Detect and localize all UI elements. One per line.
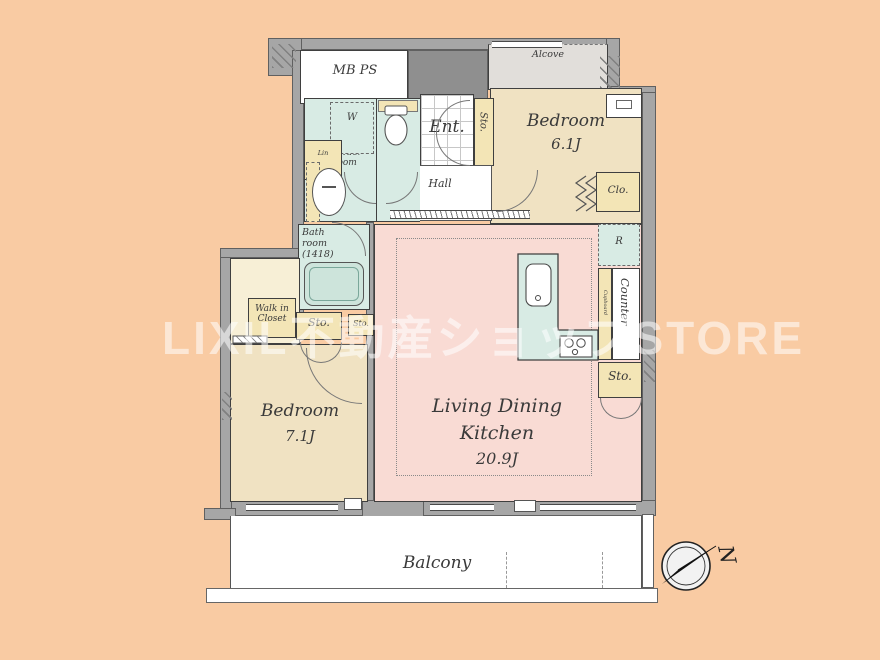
bathtub-inner [309, 267, 359, 301]
alcove-label: Alcove [498, 50, 598, 61]
shelf-label: Shelf [527, 346, 553, 353]
compass-needle [662, 546, 716, 584]
window-bedroom1 [492, 41, 562, 48]
cupboard-label: Cupboard [601, 290, 607, 315]
sink-faucet [322, 186, 336, 188]
compass: N [662, 542, 741, 590]
balcony-partition-2 [602, 552, 603, 588]
shoe-storage-label: Sto. [477, 112, 489, 132]
storage-2-label: Sto. [348, 319, 374, 328]
ldk-label-line2: Kitchen [397, 423, 597, 445]
floor-plan: MB PS Alcove Bedroom 6.1J Clo. Ent. Sto.… [0, 0, 880, 660]
storage-kitchen-label: Sto. [599, 370, 641, 384]
ldk-label-line1: Living Dining [397, 396, 597, 418]
balcony-label: Balcony [337, 554, 537, 574]
room-balcony [230, 516, 642, 588]
ldk-size: 20.9J [397, 450, 597, 468]
window-bedroom2 [246, 504, 338, 511]
shoe-storage [474, 98, 494, 166]
wall-right [642, 92, 656, 514]
refrigerator-label: R [599, 236, 639, 248]
bedroom1-size: 6.1J [500, 136, 632, 153]
compass-north-label: N [713, 542, 741, 567]
closet-bedroom1-label: Clo. [598, 184, 638, 196]
hatch-top-right [600, 56, 620, 88]
compass-outer-circle [662, 542, 710, 590]
room-toilet [376, 99, 420, 221]
wall-balcony-right-end [642, 514, 654, 588]
compass-inner-circle [667, 547, 705, 585]
sliding-door [390, 210, 530, 219]
compass-needle-line [678, 546, 716, 570]
bedroom1-niche-box [616, 100, 632, 109]
window-ldk-2 [540, 504, 636, 511]
wall-vent-1 [344, 498, 362, 510]
wall-wic-top [220, 248, 304, 258]
storage-1-label: Sto. [297, 317, 341, 330]
hatch-top-left [272, 44, 296, 68]
balcony-edge [206, 588, 658, 603]
kitchen-counter-label: Counter [618, 278, 631, 325]
washer-label: W [340, 112, 364, 124]
mb-ps-label: MB PS [305, 64, 405, 79]
hatch-left [222, 392, 232, 420]
wall-vent-2 [514, 500, 536, 512]
bedroom2-name: Bedroom [234, 402, 366, 422]
bedroom2-size: 7.1J [234, 428, 366, 445]
window-ldk-1 [430, 504, 494, 511]
wic-label: Walk in Closet [249, 304, 295, 325]
hall-label: Hall [415, 178, 465, 191]
toilet-shelf [378, 100, 418, 112]
sink-basin [312, 168, 346, 216]
hatch-right [644, 350, 655, 382]
linen-label: Lin [308, 150, 338, 157]
balcony-partition-1 [506, 552, 507, 588]
